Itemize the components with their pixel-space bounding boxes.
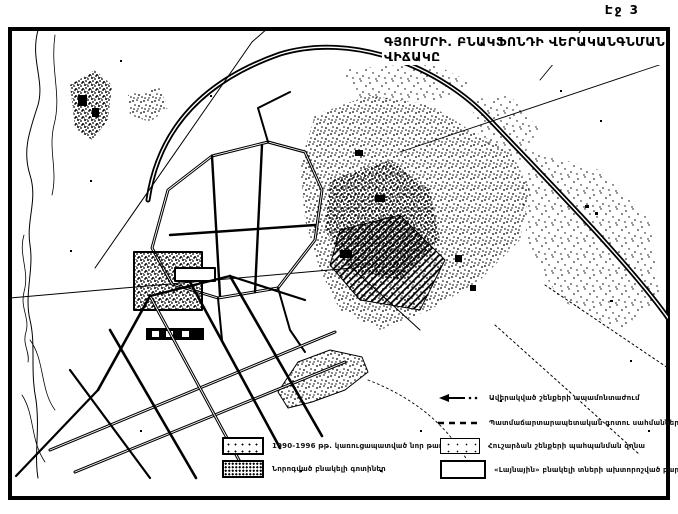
legend-item-label: Նորոգված բնակելի գոտիներ xyxy=(272,465,386,473)
historic-boundary-dash-icon xyxy=(437,417,481,429)
outline-box-swatch xyxy=(440,460,486,479)
legend-item-label: «Լայնային» բնակելի տների ախտորոշված բարե… xyxy=(494,466,678,474)
preservation-zone-swatch xyxy=(440,438,480,454)
legend-item: «Լայնային» բնակելի տների ախտորոշված բարե… xyxy=(440,460,678,479)
dense-stipple-swatch xyxy=(222,460,264,478)
legend-item-label: Պատմաճարտարապետական գոտու սահմանները xyxy=(489,419,678,427)
legend-item: Ավերակված շենքերի ապամոնտաժում xyxy=(437,392,640,404)
scanned-map-page: { "page_label": "Էջ 3", "title": { "line… xyxy=(0,0,678,514)
map-title-line1: ԳՅՈՒՄՐԻ. ԲՆԱԿՖՈՆԴԻ ՎԵՐԱԿԱՆԳՆՄԱՆ xyxy=(384,34,664,49)
demolition-arrow-icon xyxy=(437,392,481,404)
page-number-label: Էջ 3 xyxy=(605,3,640,17)
map-title: ԳՅՈՒՄՐԻ. ԲՆԱԿՖՈՆԴԻ ՎԵՐԱԿԱՆԳՆՄԱՆ ՎԻՃԱԿԸ xyxy=(382,33,666,65)
legend-item: Պատմաճարտարապետական գոտու սահմանները xyxy=(437,417,678,429)
legend-item: Հուշարձան շենքերի պահպանման զոնա xyxy=(440,438,645,454)
map-title-line2: ՎԻՃԱԿԸ xyxy=(384,49,664,64)
legend-item: Նորոգված բնակելի գոտիներ xyxy=(222,460,386,478)
legend-item-label: Հուշարձան շենքերի պահպանման զոնա xyxy=(488,442,645,450)
light-stipple-swatch xyxy=(222,437,264,455)
legend-item-label: Ավերակված շենքերի ապամոնտաժում xyxy=(489,394,640,402)
legend-item: 1990-1996 թթ. կառուցապատված նոր թաղամասե… xyxy=(222,437,476,455)
